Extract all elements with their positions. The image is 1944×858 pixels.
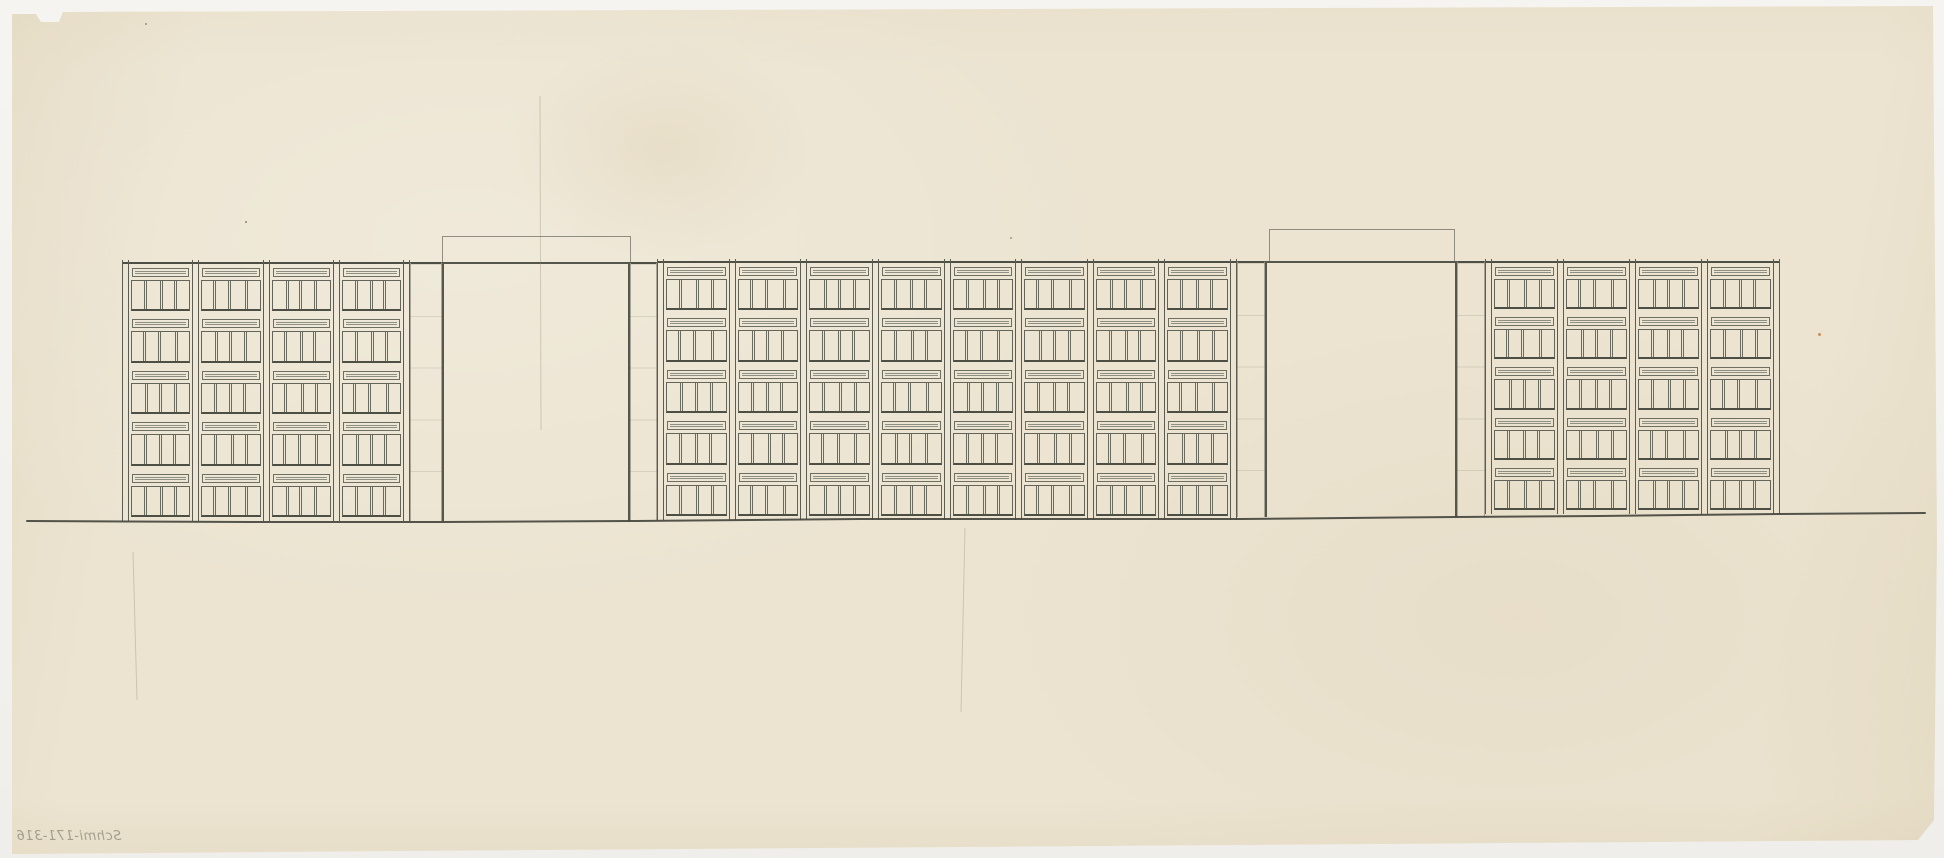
paper-speck — [1010, 237, 1012, 239]
paper-speck — [245, 221, 247, 223]
paper-speck — [1818, 333, 1821, 336]
ground-and-creases — [0, 0, 1944, 858]
paper-crease — [133, 552, 137, 700]
paper-crease — [961, 528, 965, 712]
paper-speck — [145, 23, 147, 25]
elevation-drawing — [0, 0, 1944, 858]
paper-sheet: Schmi-171-316 — [0, 0, 1944, 858]
paper-crease — [540, 96, 541, 430]
scan-background: Schmi-171-316 — [0, 0, 1944, 858]
ground-line — [27, 513, 1925, 522]
inscription: Schmi-171-316 — [16, 829, 121, 844]
